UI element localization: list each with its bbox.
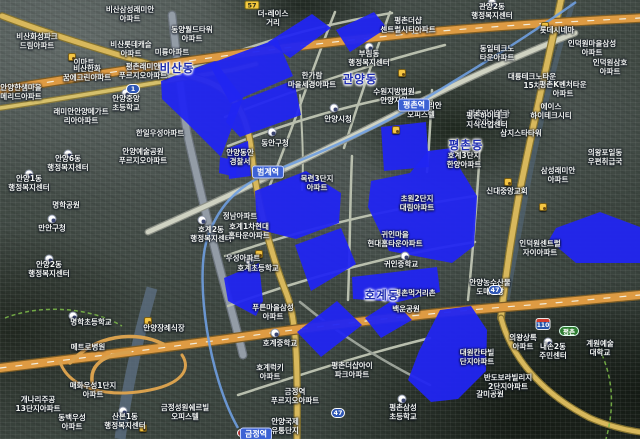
rd-east-47b-casing — [501, 318, 640, 432]
rd-minor-8 — [348, 156, 352, 300]
map-vector-layer — [0, 0, 640, 439]
highlight-zone-16[interactable] — [549, 212, 640, 263]
highlight-zone-13[interactable] — [352, 267, 440, 302]
highlight-zone-11[interactable] — [297, 301, 362, 357]
highlight-zone-12[interactable] — [365, 300, 412, 338]
stream-1 — [120, 288, 152, 439]
highlight-zone-layer — [161, 12, 640, 402]
rd-east-47b — [501, 318, 640, 432]
park-border-1 — [5, 309, 122, 326]
highlight-zone-8[interactable] — [255, 171, 341, 239]
highlight-zone-17[interactable] — [408, 306, 487, 402]
map-canvas[interactable]: 비산삼성래미안아파트동양월드타워아파트비산화성파크드림아파트비산롯데캐슬아파트미… — [0, 0, 640, 439]
highlight-zone-2[interactable] — [336, 12, 387, 52]
